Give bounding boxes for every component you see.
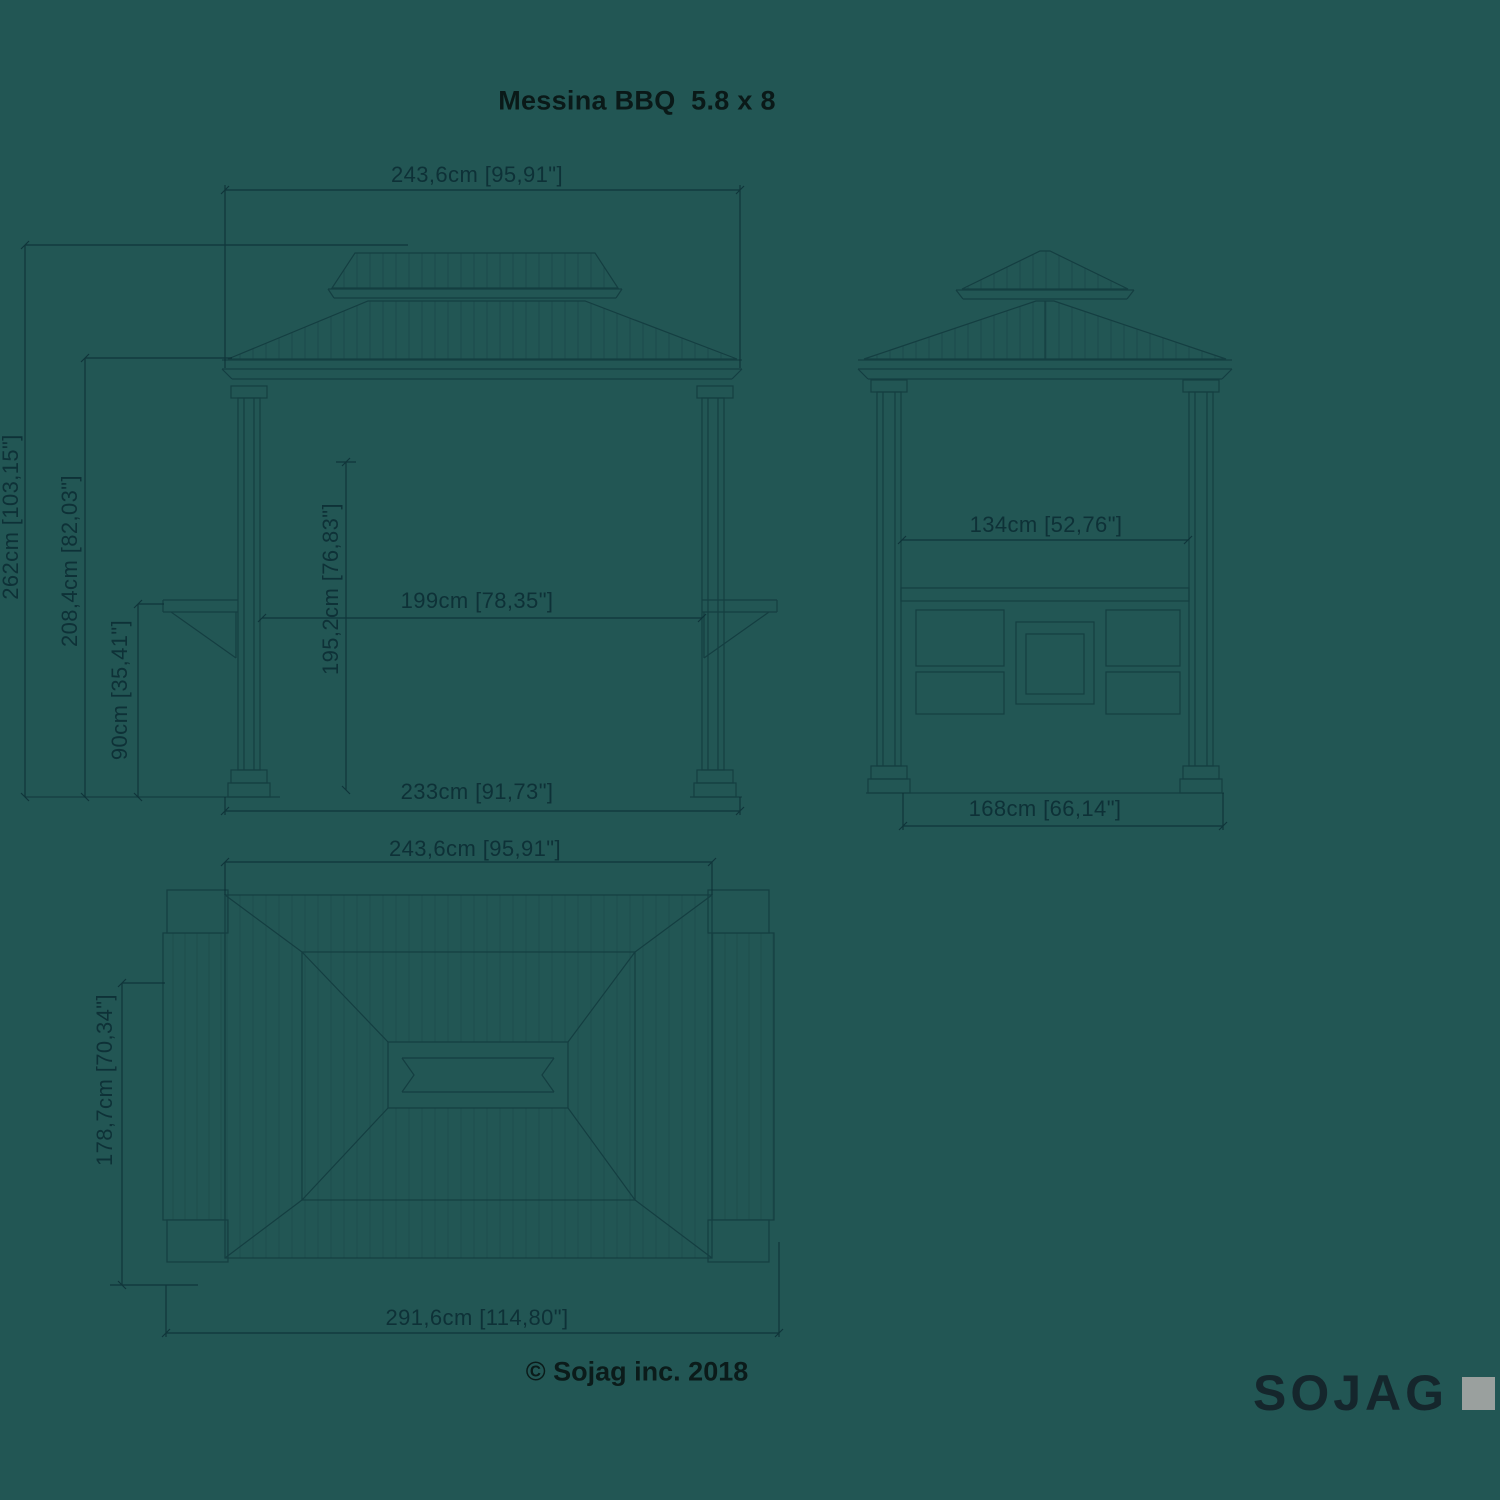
dim-front-overall-height: 262cm [103,15"] xyxy=(0,434,24,599)
dim-front-clear-width: 199cm [78,35"] xyxy=(401,588,554,614)
sojag-logo-text: SOJAG xyxy=(1253,1368,1448,1418)
dim-side-clear-depth: 134cm [52,76"] xyxy=(970,512,1123,538)
gazebo-technical-drawing xyxy=(0,0,1500,1500)
dim-side-base-depth: 168cm [66,14"] xyxy=(969,796,1122,822)
sojag-logo-square-icon xyxy=(1462,1377,1495,1410)
side-elevation-dimension-lines xyxy=(898,536,1227,830)
dim-plan-overall-width: 291,6cm [114,80"] xyxy=(386,1305,569,1331)
roof-plan-drawing xyxy=(163,890,774,1262)
drawing-title: Messina BBQ 5.8 x 8 xyxy=(498,86,776,117)
blueprint-page: Messina BBQ 5.8 x 8 243,6cm [95,91"] 262… xyxy=(0,0,1500,1500)
sojag-logo: SOJAG xyxy=(1253,1368,1500,1418)
dim-plan-roof-depth: 178,7cm [70,34"] xyxy=(92,994,118,1166)
dim-front-eave-height: 208,4cm [82,03"] xyxy=(57,475,83,647)
dim-front-shelf-height: 90cm [35,41"] xyxy=(107,620,133,760)
dim-plan-roof-width: 243,6cm [95,91"] xyxy=(389,836,561,862)
copyright-text: © Sojag inc. 2018 xyxy=(526,1357,749,1388)
dim-front-roof-width: 243,6cm [95,91"] xyxy=(391,162,563,188)
dim-front-clearance-height: 195,2cm [76,83"] xyxy=(318,503,344,675)
dim-front-base-width: 233cm [91,73"] xyxy=(401,779,554,805)
